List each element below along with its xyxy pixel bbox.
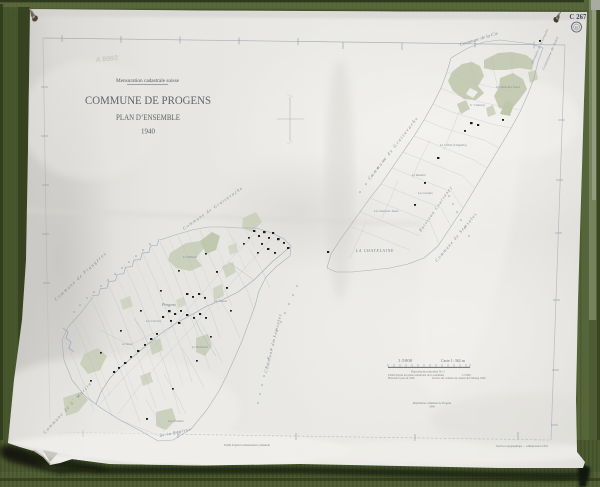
svg-text:Le Villard: Le Villard — [182, 255, 197, 259]
svg-text:Les Suard de Jones: Les Suard de Jones — [373, 209, 399, 213]
svg-text:PLAN D’ENSEMBLE: PLAN D’ENSEMBLE — [116, 112, 180, 122]
svg-text:1940: 1940 — [429, 405, 435, 408]
svg-text:1940: 1940 — [141, 128, 156, 136]
svg-text:C 267: C 267 — [570, 13, 587, 21]
svg-text:Progens: Progens — [161, 302, 176, 307]
svg-text:Les Prealles: Les Prealles — [167, 419, 184, 423]
svg-text:RF: RF — [575, 26, 579, 29]
svg-text:1:5000: 1:5000 — [398, 358, 413, 363]
svg-text:COMMUNE DE PROGENS: COMMUNE DE PROGENS — [85, 95, 211, 107]
svg-text:Service topographique — réimpr: Service topographique — réimpression 195… — [496, 444, 548, 448]
svg-text:Plan mis à jour en 1940: Plan mis à jour en 1940 — [388, 377, 415, 380]
svg-text:Mensuration cadastrale suisse: Mensuration cadastrale suisse — [116, 79, 180, 84]
svg-text:la Verne: la Verne — [122, 342, 133, 346]
svg-text:Les Suard: Les Suard — [213, 299, 227, 303]
svg-text:Etabli d'après la mensuration: Etabli d'après la mensuration cadastrale — [224, 443, 271, 447]
svg-text:Le Crible (Chapelle): Le Crible (Chapelle) — [439, 143, 467, 147]
svg-text:Les Guedes: Les Guedes — [417, 191, 434, 195]
svg-text:Le Niremont: Le Niremont — [191, 345, 208, 349]
svg-text:LA CHATELAINE: LA CHATELAINE — [355, 249, 394, 253]
svg-text:Service du cadastre du canton: Service du cadastre du canton de Fribour… — [432, 377, 486, 380]
svg-text:Reproduction interdite No 5: Reproduction interdite No 5 — [411, 369, 445, 373]
svg-text:Les Ciernes: Les Ciernes — [145, 319, 162, 323]
svg-text:S´ Chaussy: S´ Chaussy — [470, 103, 486, 107]
svg-text:Carte 1: 362 m: Carte 1: 362 m — [441, 358, 466, 363]
svg-text:Imprimerie commune de Progens: Imprimerie commune de Progens — [413, 401, 452, 405]
svg-text:Le Rosaire: Le Rosaire — [411, 173, 426, 177]
svg-text:Les Bois des Jones: Les Bois des Jones — [495, 85, 521, 89]
